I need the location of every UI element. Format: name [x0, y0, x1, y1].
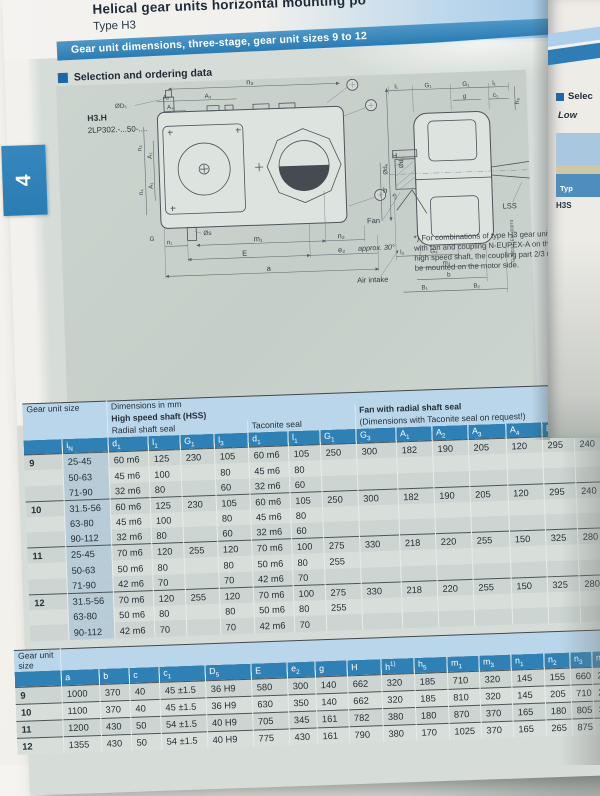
- column-header: l3: [213, 432, 248, 448]
- cell: 145: [511, 669, 545, 687]
- cell: 265: [546, 719, 573, 737]
- catalog-page: Helical gear units horizontal mounting p…: [2, 0, 600, 796]
- cell: [400, 549, 437, 566]
- cell: 140: [316, 692, 349, 710]
- svg-text:G₁: G₁: [424, 82, 431, 89]
- bullet-square-icon: [556, 93, 564, 101]
- cell: [470, 516, 509, 533]
- column-header: d1: [247, 431, 288, 448]
- cell: 80: [288, 460, 321, 477]
- ratio-cell: 90-112: [65, 530, 112, 547]
- cell: [543, 467, 576, 484]
- cell: 125: [150, 496, 183, 513]
- svg-text:A₃: A₃: [205, 93, 212, 100]
- cell: 80: [151, 527, 184, 544]
- cell: 80: [218, 556, 253, 573]
- cell: 875: [572, 718, 595, 736]
- cell: 218: [401, 580, 438, 597]
- cell: [321, 475, 358, 492]
- cell: [436, 564, 473, 581]
- svg-text:Air intake: Air intake: [357, 275, 389, 285]
- cell: 80: [153, 605, 186, 622]
- cell: 320: [479, 687, 512, 705]
- adjacent-info-box: Typ: [556, 133, 600, 197]
- cell: 45 m6: [248, 462, 289, 479]
- cell: 250: [321, 490, 358, 507]
- gear-unit-size-header: Gear unit size: [22, 401, 107, 440]
- svg-text:B₂: B₂: [473, 282, 480, 289]
- cell: [185, 604, 220, 621]
- blank-column-header: [24, 439, 63, 456]
- cell: 45 m6: [109, 466, 150, 483]
- cell: [511, 592, 548, 609]
- cell: 1200: [62, 718, 101, 736]
- cell: [181, 480, 216, 497]
- cell: 50: [130, 716, 161, 734]
- cell: 161: [316, 709, 349, 727]
- svg-text:Ød₁: Ød₁: [398, 158, 405, 169]
- cell: [510, 561, 547, 578]
- cell: 70 m6: [113, 590, 154, 607]
- cell: 300: [594, 717, 600, 735]
- blank-column-header: [15, 670, 62, 687]
- cell: 60 m6: [108, 451, 149, 468]
- cell: 105: [214, 447, 249, 464]
- cell: 255: [183, 542, 218, 559]
- cell: 320: [381, 673, 415, 691]
- cell: 230: [180, 449, 215, 466]
- cell: [180, 464, 215, 481]
- column-header: A1: [395, 426, 432, 442]
- ratio-cell: 31.5-56: [67, 592, 114, 609]
- cell: 220: [437, 579, 474, 596]
- cell: 105: [290, 491, 323, 508]
- cell: 42 m6: [254, 616, 295, 633]
- cell: 45 ±1.5: [160, 697, 207, 716]
- cell: [326, 614, 363, 631]
- cell: 70: [154, 620, 187, 637]
- cell: 80: [152, 558, 185, 575]
- cell: [472, 562, 511, 579]
- cell: 70 m6: [251, 539, 292, 556]
- gear-unit-size-cell: [29, 609, 68, 626]
- cell: [182, 511, 217, 528]
- cell: 790: [349, 725, 384, 743]
- cell: [474, 609, 513, 626]
- ratio-cell: 25-45: [65, 545, 112, 562]
- gear-unit-size-cell: 11: [27, 547, 66, 564]
- cell: 300: [356, 442, 397, 459]
- cell: 218: [399, 534, 436, 551]
- cell: 320: [479, 670, 512, 688]
- cell: 42 m6: [114, 621, 155, 638]
- cell: 810: [447, 688, 480, 706]
- cell: 50 m6: [113, 606, 154, 623]
- cell: 295: [543, 483, 576, 500]
- cell: [186, 619, 221, 636]
- cell: [579, 590, 600, 607]
- cell: 32 m6: [111, 528, 152, 545]
- cell: 50 m6: [253, 601, 294, 618]
- cell: 662: [348, 691, 383, 709]
- cell: [542, 452, 575, 469]
- cell: 300: [593, 700, 600, 718]
- cell: 155: [544, 668, 571, 686]
- gear-unit-size-cell: 11: [16, 719, 63, 738]
- cell: 80: [149, 481, 182, 498]
- cell: 245: [592, 666, 600, 684]
- cell: 70 m6: [111, 544, 152, 561]
- svg-text:A₁: A₁: [147, 152, 154, 159]
- ratio-cell: 90-112: [68, 623, 115, 640]
- cell: 295: [542, 436, 575, 453]
- cell: 100: [293, 584, 326, 601]
- technical-drawing-panel: H3.H 2LP302.-...50-....: [56, 70, 537, 408]
- cell: 345: [288, 710, 317, 728]
- column-header: G1: [319, 428, 356, 444]
- gear-unit-size-cell: [25, 485, 64, 502]
- cell: 120: [217, 540, 252, 557]
- cell: 170: [416, 723, 450, 741]
- svg-text:h: h: [383, 186, 387, 195]
- cell: 120: [219, 587, 254, 604]
- cell: 630: [252, 694, 289, 712]
- cell: 70 m6: [253, 585, 294, 602]
- cell: 80: [292, 553, 325, 570]
- cell: 150: [509, 530, 546, 547]
- cell: 205: [468, 438, 507, 455]
- svg-text:n₄: n₄: [136, 145, 143, 152]
- cell: 40: [130, 699, 161, 717]
- cell: [468, 454, 507, 471]
- cell: 325: [545, 529, 578, 546]
- svg-text:G: G: [149, 236, 154, 243]
- gear-unit-size-cell: 12: [17, 736, 64, 755]
- svg-text:n₁: n₁: [167, 239, 173, 246]
- cell: 50: [131, 733, 162, 751]
- gear-unit-size-cell: 9: [24, 454, 63, 471]
- column-header: c: [129, 667, 160, 683]
- svg-text:a: a: [267, 264, 272, 273]
- gear-unit-size-cell: [28, 578, 67, 595]
- cell: 54 ±1.5: [160, 714, 207, 733]
- cell: [398, 503, 435, 520]
- cell: 60: [217, 525, 252, 542]
- cell: [434, 517, 471, 534]
- cell: [401, 596, 438, 613]
- cell: [357, 473, 398, 490]
- cell: 662: [347, 674, 382, 692]
- cell: 45 m6: [250, 508, 291, 525]
- cell: [508, 515, 545, 532]
- gear-unit-size-cell: 10: [16, 702, 63, 721]
- gear-unit-size-cell: [28, 562, 67, 579]
- cell: [577, 543, 600, 560]
- cell: 180: [415, 706, 449, 724]
- cell: 120: [151, 543, 184, 560]
- svg-text:A₁: A₁: [148, 182, 155, 189]
- cell: 370: [100, 700, 131, 718]
- cell: 245: [592, 683, 600, 701]
- cell: 370: [481, 721, 514, 739]
- cell: 161: [317, 726, 350, 744]
- cell: 255: [324, 552, 361, 569]
- adjacent-subheading: Low: [558, 110, 600, 121]
- gear-unit-size-cell: [26, 516, 65, 533]
- cell: [433, 471, 470, 488]
- ratio-cell: 31.5-56: [64, 499, 111, 516]
- gear-unit-size-cell: [27, 531, 66, 548]
- cell: 80: [214, 463, 249, 480]
- column-header: n4: [591, 651, 600, 667]
- gear-unit-size-cell: [25, 469, 64, 486]
- cell: 1100: [62, 701, 101, 719]
- cell: 42 m6: [252, 570, 293, 587]
- ratio-cell: 71-90: [63, 483, 110, 500]
- cell: [578, 559, 600, 576]
- svg-text:approx. 30°: approx. 30°: [358, 242, 395, 252]
- cell: 120: [507, 484, 544, 501]
- cell: 255: [185, 588, 220, 605]
- column-header: H: [346, 659, 381, 675]
- cell: 60 m6: [248, 446, 289, 463]
- column-header: h1): [380, 658, 414, 674]
- cell: [544, 514, 577, 531]
- svg-text:n₃: n₃: [246, 77, 254, 86]
- cell: 380: [383, 724, 417, 742]
- svg-text:B₁: B₁: [421, 284, 428, 291]
- svg-text:LSS: LSS: [502, 201, 516, 210]
- column-header: m1: [446, 656, 479, 672]
- cell: [323, 521, 360, 538]
- column-header: n3: [569, 652, 592, 668]
- svg-text:Ød₆: Ød₆: [382, 163, 389, 175]
- cell: [546, 560, 579, 577]
- column-header: D5: [204, 663, 251, 680]
- svg-text:ØD₅: ØD₅: [115, 103, 128, 110]
- cell: [434, 502, 471, 519]
- cell: 42 m6: [112, 575, 153, 592]
- cell: 70: [220, 618, 255, 635]
- cell: 70: [294, 615, 327, 632]
- svg-text:h₅: h₅: [514, 97, 521, 104]
- cell: [360, 551, 401, 568]
- general-dimensions-table: Gear unit size abcc1D5Ee2gHh1)h5m1m3n1n2…: [14, 629, 600, 755]
- svg-text:l₁: l₁: [492, 80, 496, 87]
- svg-text:c₁: c₁: [493, 92, 499, 99]
- cell: 70: [292, 569, 325, 586]
- column-header: n1: [510, 653, 544, 669]
- cell: [580, 605, 600, 622]
- cell: 190: [433, 486, 470, 503]
- drawing-footnote: *) For combinations of type H3 gear unit…: [414, 228, 567, 273]
- cell: [362, 613, 403, 630]
- cell: 782: [348, 708, 383, 726]
- cell: [547, 591, 580, 608]
- cell: 60 m6: [110, 497, 151, 514]
- cell: 220: [435, 533, 472, 550]
- cell: 705: [252, 711, 289, 729]
- chapter-tab-number: 4: [12, 174, 36, 187]
- cell: [576, 497, 600, 514]
- page-subtitle: Type H3: [93, 19, 136, 32]
- cell: 40: [129, 682, 160, 700]
- page-title: Helical gear units horizontal mounting p…: [92, 0, 366, 17]
- cell: [510, 546, 547, 563]
- cell: 240: [575, 481, 600, 498]
- cell: [358, 504, 399, 521]
- cell: [184, 557, 219, 574]
- cell: [322, 506, 359, 523]
- ratio-cell: 50-63: [66, 561, 113, 578]
- cell: [320, 459, 357, 476]
- cell: [473, 593, 512, 610]
- cell: 330: [361, 582, 402, 599]
- cell: [360, 566, 401, 583]
- column-header: E: [250, 662, 287, 678]
- cell: 165: [512, 702, 546, 720]
- cell: [183, 526, 218, 543]
- cell: 275: [325, 583, 362, 600]
- svg-text:l₁: l₁: [394, 83, 398, 90]
- cell: 125: [148, 450, 181, 467]
- cell: 660: [570, 667, 593, 685]
- cell: [399, 518, 436, 535]
- column-header: l1: [287, 430, 320, 446]
- column-header: m3: [478, 654, 511, 670]
- ratio-cell: 71-90: [66, 576, 113, 593]
- gear-unit-size-cell: 9: [15, 685, 62, 704]
- top-view-housing: [156, 84, 347, 241]
- cell: 70: [218, 571, 253, 588]
- cell: 330: [359, 535, 400, 552]
- cell: 165: [513, 719, 547, 737]
- side-view-housing: [387, 109, 537, 246]
- cell: 100: [150, 512, 183, 529]
- cell: 370: [480, 704, 513, 722]
- cell: [397, 472, 434, 489]
- cell: 430: [100, 717, 131, 735]
- column-header: e2: [286, 661, 315, 677]
- cell: 230: [182, 495, 217, 512]
- cell: 54 ±1.5: [161, 731, 208, 750]
- cell: 100: [291, 538, 324, 555]
- adjacent-section-heading: Selec: [556, 91, 600, 102]
- cell: 190: [432, 440, 469, 457]
- column-header: h5: [413, 657, 447, 673]
- cell: 1355: [63, 735, 102, 753]
- adjacent-type-code: H3S: [556, 201, 600, 210]
- column-header: A3: [467, 423, 506, 440]
- ratio-cell: 25-45: [62, 452, 109, 469]
- cell: 32 m6: [109, 482, 150, 499]
- cell: 710: [447, 671, 480, 689]
- svg-text:Øs: Øs: [203, 230, 211, 237]
- cell: 105: [288, 445, 321, 462]
- column-header: c1: [159, 665, 206, 682]
- cell: [548, 606, 581, 623]
- svg-text:E: E: [242, 249, 247, 258]
- cell: 150: [511, 577, 548, 594]
- cell: 60: [291, 522, 324, 539]
- cell: 36 H9: [206, 696, 253, 715]
- gear-unit-size-cell: [30, 624, 69, 641]
- cell: 140: [315, 675, 348, 693]
- column-header: g: [314, 660, 347, 676]
- cell: 145: [511, 685, 545, 703]
- ratio-cell: 63-80: [67, 607, 114, 624]
- cell: 80: [293, 600, 326, 617]
- cell: [576, 512, 600, 529]
- cell: [400, 565, 437, 582]
- hss-dimensions-table: Gear unit size Dimensions in mm High spe…: [22, 383, 600, 642]
- cell: 300: [287, 676, 316, 694]
- ratio-cell: 50-63: [63, 468, 110, 485]
- column-header: d1: [107, 436, 148, 453]
- chapter-tab: 4: [1, 145, 47, 216]
- cell: 320: [381, 690, 415, 708]
- cell: 255: [325, 599, 362, 616]
- cell: 580: [251, 677, 288, 695]
- cell: 870: [448, 705, 481, 723]
- cell: [470, 500, 509, 517]
- cell: 185: [414, 672, 448, 690]
- cell: 40 H9: [206, 713, 253, 732]
- cell: 185: [414, 689, 448, 707]
- cell: [546, 544, 579, 561]
- cell: 1000: [61, 684, 100, 702]
- column-header: G1: [179, 433, 214, 449]
- gear-unit-size-cell: 10: [26, 500, 65, 517]
- cell: 255: [471, 531, 510, 548]
- cell: 325: [547, 575, 580, 592]
- cell: 60: [289, 476, 322, 493]
- cell: [432, 455, 469, 472]
- cell: [356, 458, 397, 475]
- cell: 36 H9: [205, 679, 252, 698]
- adjacent-page-bands: [548, 25, 600, 65]
- column-header: a: [61, 669, 100, 686]
- cell: [396, 457, 433, 474]
- cell: [506, 453, 543, 470]
- cell: 182: [397, 487, 434, 504]
- cell: 100: [149, 465, 182, 482]
- svg-text:g: g: [463, 93, 467, 100]
- column-header: l1: [147, 435, 180, 451]
- cell: 120: [153, 589, 186, 606]
- cell: 250: [320, 444, 357, 461]
- cell: 32 m6: [249, 477, 290, 494]
- svg-text:A₄: A₄: [167, 104, 174, 111]
- cell: 350: [288, 693, 317, 711]
- cell: 45 ±1.5: [159, 680, 206, 699]
- cell: 430: [101, 734, 132, 752]
- cell: 70: [152, 574, 185, 591]
- cell: 105: [216, 494, 251, 511]
- cell: [402, 611, 439, 628]
- column-header: A4: [505, 422, 542, 438]
- cell: 205: [469, 485, 508, 502]
- cell: [575, 466, 600, 483]
- cell: 80: [290, 507, 323, 524]
- cell: 182: [396, 441, 433, 458]
- column-header: b: [99, 668, 130, 684]
- cell: 50 m6: [252, 554, 293, 571]
- cell: 80: [216, 509, 251, 526]
- adjacent-page-edge: Selec Low Typ H3S: [548, 0, 600, 438]
- cell: 300: [357, 489, 398, 506]
- cell: [184, 573, 219, 590]
